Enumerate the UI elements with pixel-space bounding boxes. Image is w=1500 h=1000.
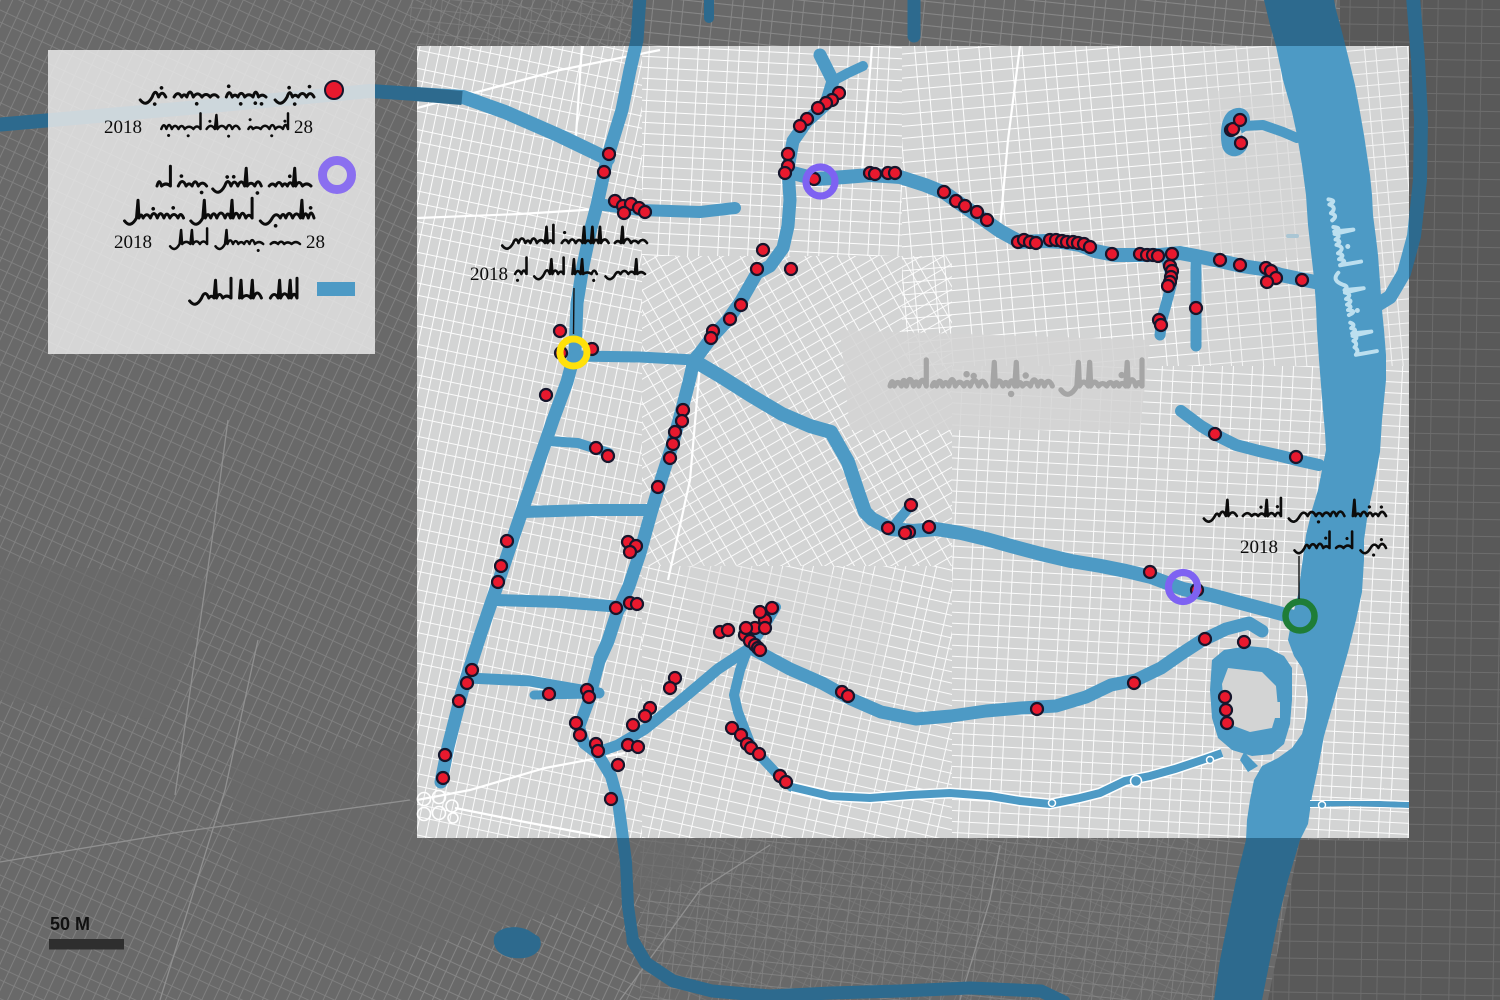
svg-text:2018: 2018 bbox=[470, 264, 508, 285]
svg-text:2018: 2018 bbox=[114, 232, 152, 253]
svg-text:50 M: 50 M bbox=[50, 914, 90, 934]
svg-text:2018: 2018 bbox=[1240, 537, 1278, 558]
svg-text:2018: 2018 bbox=[104, 117, 142, 138]
svg-text:28: 28 bbox=[306, 232, 325, 253]
svg-text:28: 28 bbox=[294, 117, 313, 138]
